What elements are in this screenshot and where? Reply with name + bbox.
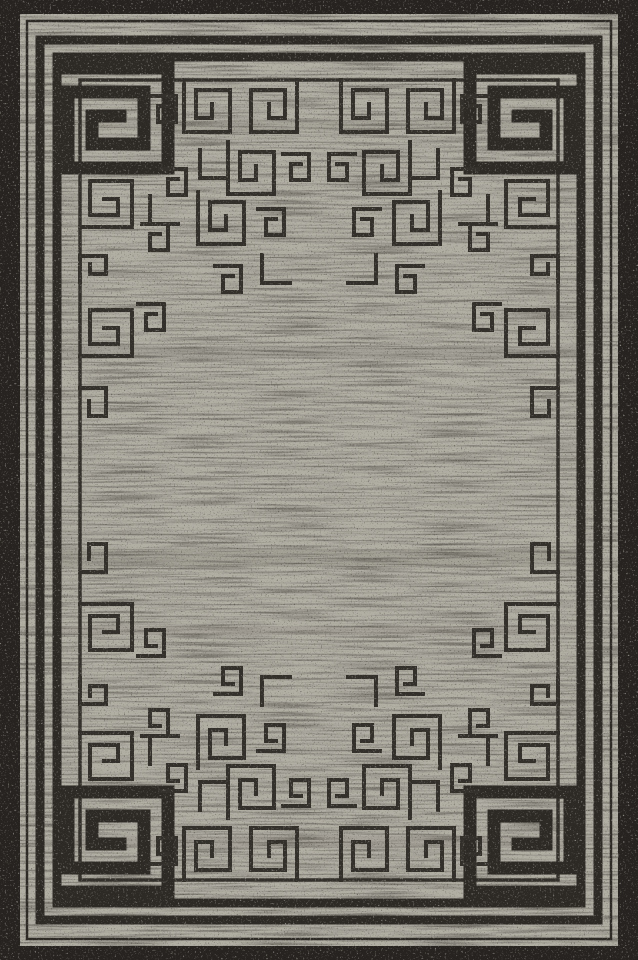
rug-photo-stage [0, 0, 638, 960]
texture-speckle-light [0, 0, 638, 960]
rug-photo [0, 0, 638, 960]
